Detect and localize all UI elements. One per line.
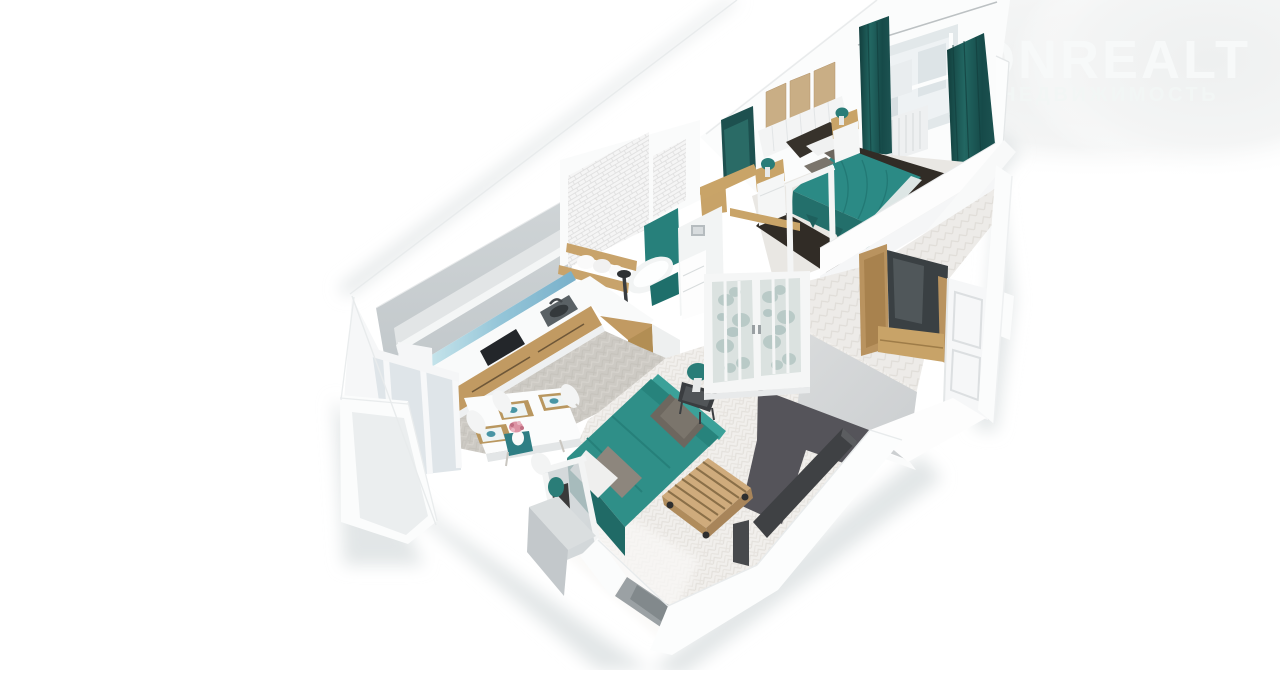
svg-text:ONREALT: ONREALT — [973, 30, 1251, 90]
svg-text:НЕДВИЖИМОСТЬ: НЕДВИЖИМОСТЬ — [1001, 84, 1219, 106]
